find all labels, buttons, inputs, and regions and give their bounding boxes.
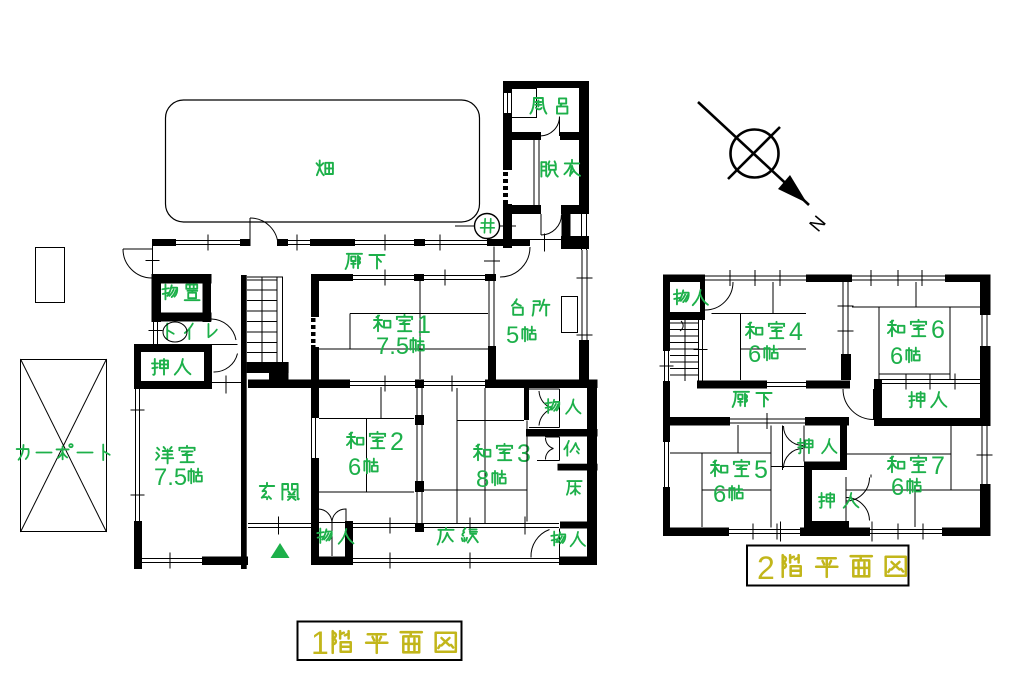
svg-text:6: 6	[890, 343, 903, 370]
svg-text:7.5: 7.5	[376, 333, 409, 360]
svg-text:7: 7	[931, 452, 945, 480]
svg-text:6: 6	[891, 474, 904, 501]
svg-text:2: 2	[757, 550, 775, 586]
svg-text:1: 1	[417, 311, 431, 339]
svg-text:5: 5	[506, 322, 519, 349]
svg-text:7.5: 7.5	[154, 464, 187, 491]
svg-text:6: 6	[748, 341, 761, 368]
svg-text:3: 3	[517, 440, 531, 468]
svg-text:6: 6	[348, 454, 361, 481]
svg-text:8: 8	[476, 466, 489, 493]
svg-text:4: 4	[789, 318, 803, 346]
svg-text:6: 6	[713, 481, 726, 508]
svg-text:2: 2	[390, 428, 404, 456]
svg-text:5: 5	[754, 456, 768, 484]
svg-text:6: 6	[931, 316, 945, 344]
svg-text:1: 1	[311, 625, 329, 661]
